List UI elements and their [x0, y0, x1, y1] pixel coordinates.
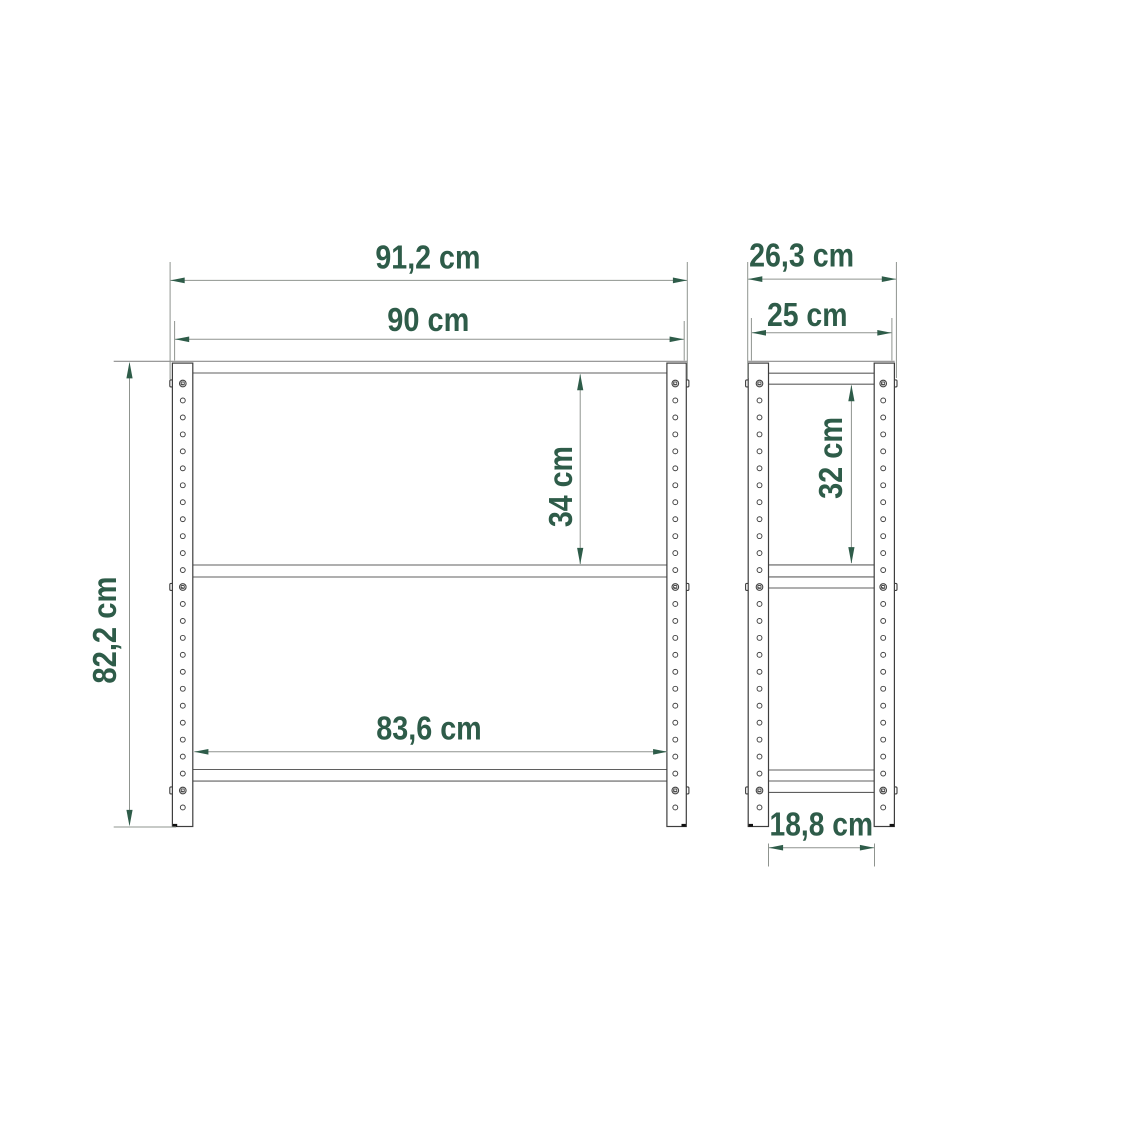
- svg-text:34 cm: 34 cm: [542, 446, 579, 527]
- svg-text:91,2 cm: 91,2 cm: [375, 239, 480, 276]
- svg-text:83,6 cm: 83,6 cm: [376, 709, 482, 746]
- svg-text:18,8 cm: 18,8 cm: [770, 806, 874, 843]
- svg-text:32 cm: 32 cm: [812, 417, 849, 499]
- svg-text:90 cm: 90 cm: [387, 301, 469, 338]
- svg-text:26,3 cm: 26,3 cm: [749, 237, 854, 274]
- svg-text:82,2 cm: 82,2 cm: [86, 577, 123, 684]
- svg-text:25 cm: 25 cm: [767, 296, 848, 333]
